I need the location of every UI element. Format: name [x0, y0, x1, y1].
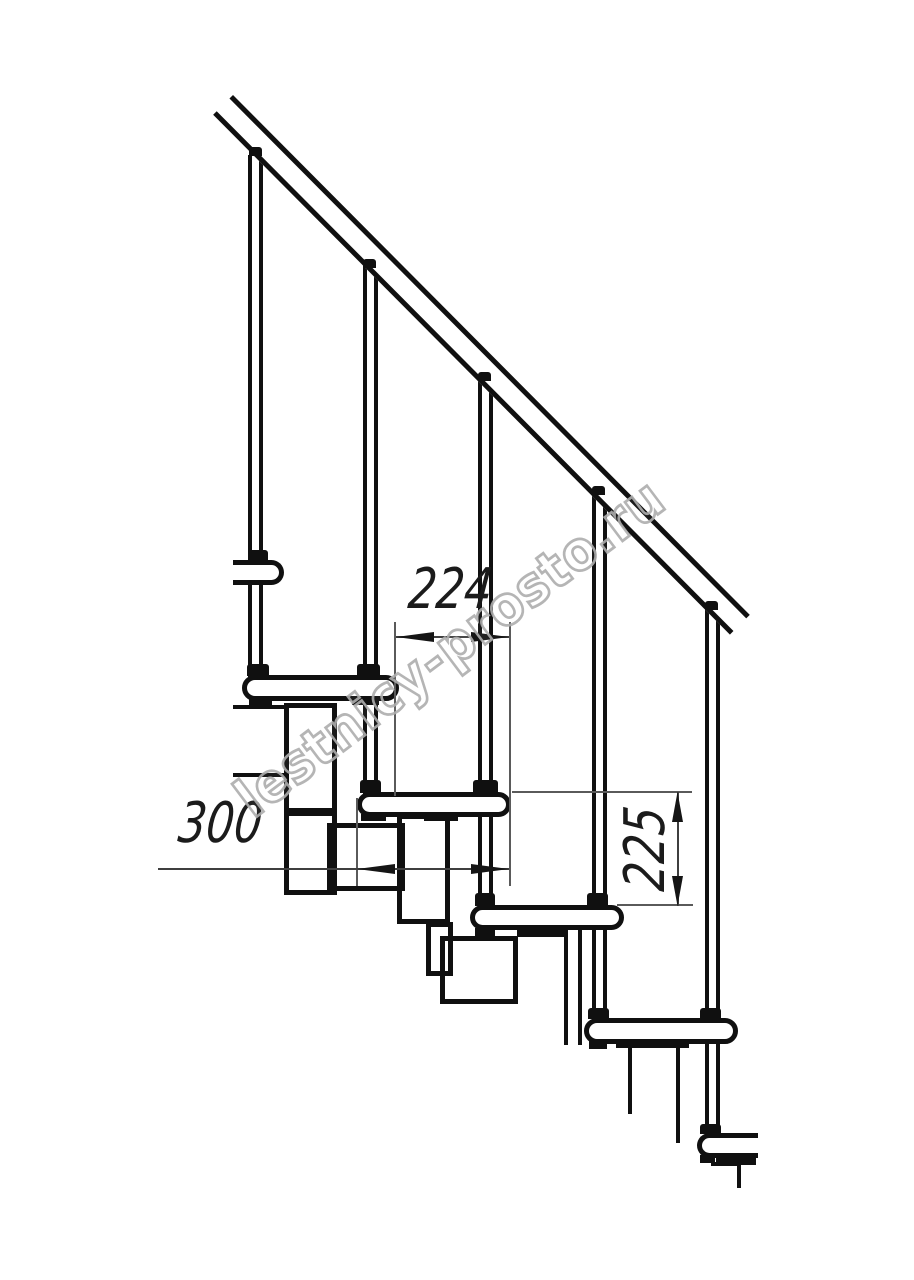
technical-drawing: 224 300 225 lestnicy-prosto.ru — [0, 0, 914, 1280]
baluster-mount — [700, 1124, 721, 1134]
tread-tab — [361, 814, 386, 821]
tread-tab — [700, 1155, 715, 1163]
tread-tab — [716, 1155, 756, 1165]
tread-tab — [475, 928, 495, 936]
tread-tab — [424, 814, 458, 821]
dim-300-line — [158, 868, 509, 870]
module-cut-line — [628, 1047, 632, 1114]
baluster-mount — [473, 780, 498, 793]
baluster-cap-2 — [363, 259, 376, 268]
baluster-mount — [248, 550, 268, 561]
module-box — [440, 936, 518, 1004]
module-column — [564, 928, 582, 1045]
dim-224-extension-right — [509, 622, 511, 886]
module-box — [327, 823, 405, 891]
module-cut-line — [737, 1162, 741, 1188]
tread-tab — [249, 698, 272, 706]
baluster-mount — [588, 1008, 609, 1019]
tread-3 — [470, 905, 624, 930]
baluster-cap-5 — [705, 601, 718, 610]
dim-225-value: 225 — [618, 804, 674, 893]
dim-225-label: 225 — [615, 790, 677, 908]
module-cut-line — [676, 1045, 680, 1143]
baluster-cap-3 — [478, 372, 491, 381]
baluster-mount — [475, 893, 495, 906]
tread-0 — [233, 560, 284, 585]
baluster-mount — [360, 780, 381, 793]
dim-300-extension-left — [356, 798, 358, 886]
tread-tab — [517, 928, 568, 937]
baluster-mount — [587, 893, 608, 906]
baluster-cap-1 — [249, 147, 262, 156]
baluster-1 — [248, 155, 263, 677]
tread-tab — [616, 1041, 689, 1048]
baluster-mount — [700, 1008, 721, 1019]
watermark-text: lestnicy-prosto.ru — [223, 466, 676, 829]
baluster-mount — [247, 664, 269, 676]
baluster-5 — [705, 610, 720, 1135]
tread-tab — [589, 1041, 607, 1049]
